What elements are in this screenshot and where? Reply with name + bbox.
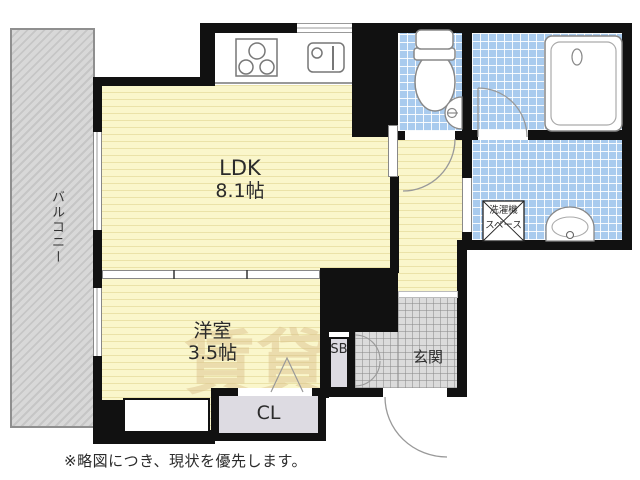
wall-segment [462,23,472,140]
ldk-size-label: 8.1帖 [175,181,305,203]
entrance-door-arc [385,397,447,457]
wall-segment [349,332,355,390]
kitchen-window [297,23,352,33]
hallway [398,140,462,297]
entrance-area-left [355,332,398,388]
toilet-door-opening [405,131,455,140]
entrance-step [398,291,458,298]
entrance-label: 玄関 [399,346,457,367]
disclaimer-note: ※略図につき、現状を優先します。 [64,450,307,471]
wall-segment [93,86,102,132]
ldk-label-group: LDK 8.1帖 [175,156,305,203]
bathroom [472,33,622,130]
washroom-opening [462,178,472,232]
balcony-label: バルコニー [47,190,66,265]
washer-space-label-line1: 洗濯機 [481,204,526,219]
wall-segment [200,23,632,33]
washer-space-label-line2: スペース [481,219,526,234]
sliding-door-ldk-hall [388,125,398,177]
western-room-label-group: 洋室 3.5帖 [150,321,275,364]
entrance-area [398,297,457,388]
wall-segment [93,77,215,86]
closet-label: CL [219,402,318,424]
wall-segment [320,268,398,332]
washer-space-label: 洗濯機 スペース [481,204,526,233]
bath-door-opening [478,130,528,140]
wall-segment [457,240,467,397]
western-room-size-label: 3.5帖 [150,343,275,364]
wall-segment [352,23,398,137]
wall-segment [320,388,383,397]
floor-plan: 賃貸 [0,0,640,480]
balcony-window-ldk [93,132,102,230]
toilet-room [399,33,462,131]
wall-segment [93,230,102,288]
wall-segment [390,176,399,273]
kitchen-counter-area [215,33,352,84]
western-room-label: 洋室 [150,321,275,343]
wall-segment [457,240,632,250]
closet-door-opening [238,388,312,396]
balcony-window-western-room [93,288,102,356]
ldk-label: LDK [175,156,305,181]
sliding-door-ldk-western [102,270,320,279]
wall-segment [200,23,215,85]
window-counter-box [123,398,210,433]
shoe-box-label: SB [329,342,349,359]
wall-segment [93,356,102,404]
entrance-door-opening [383,388,447,397]
